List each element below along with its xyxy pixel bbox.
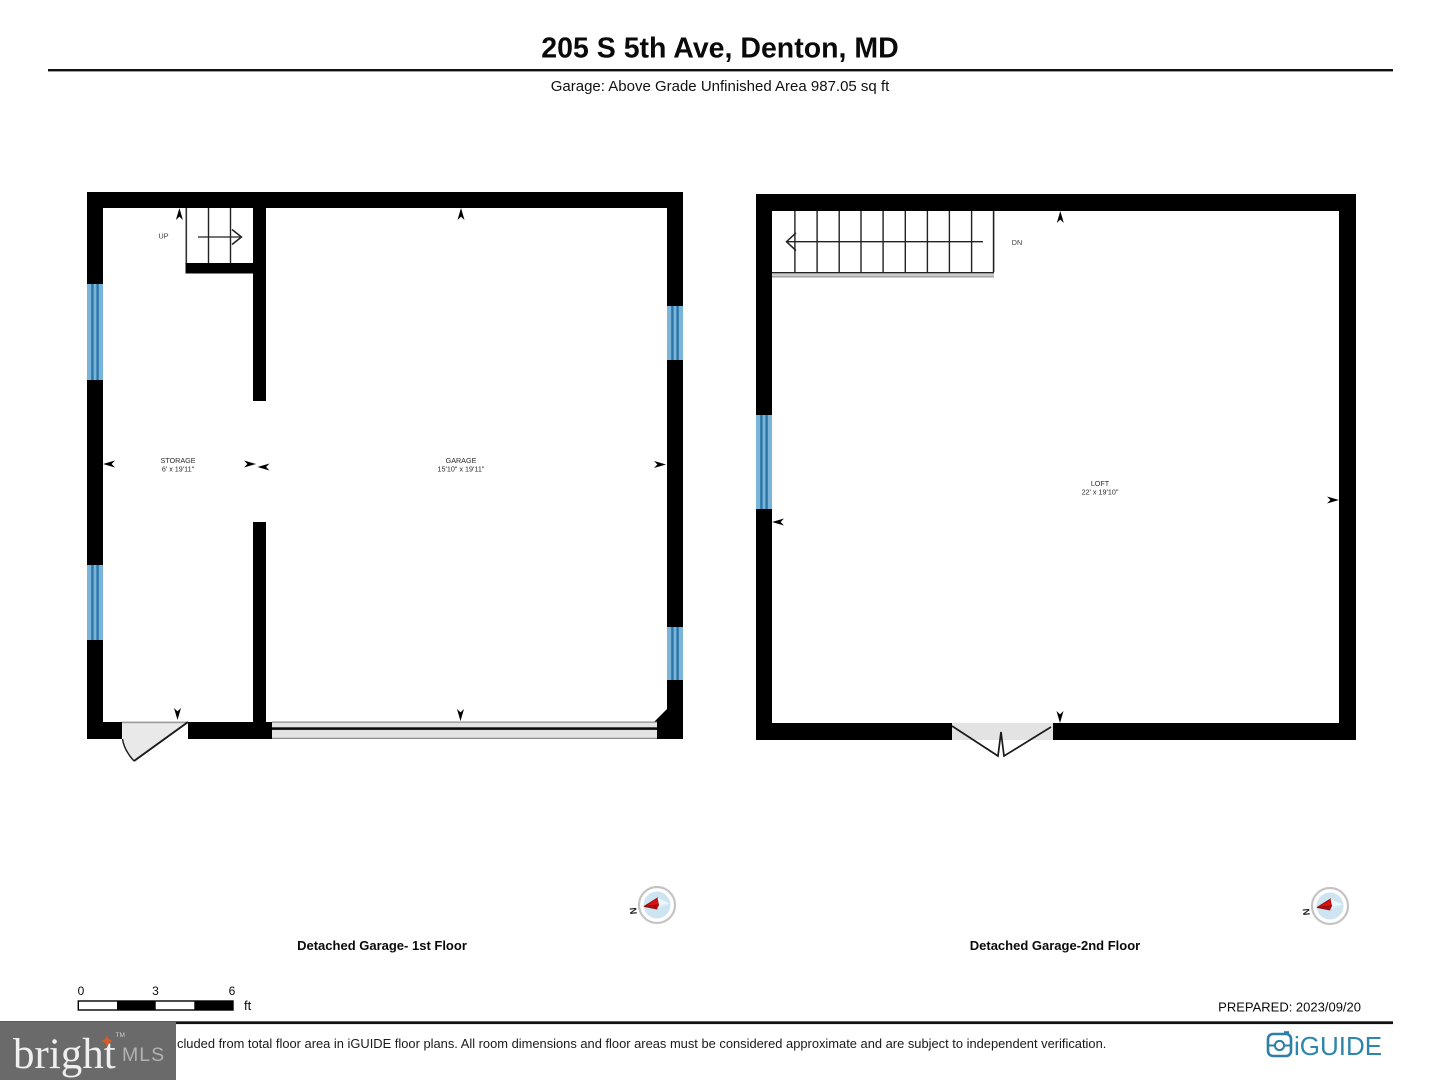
svg-text:iGUIDE: iGUIDE: [1294, 1031, 1382, 1061]
svg-text:205 S 5th Ave, Denton, MD: 205 S 5th Ave, Denton, MD: [541, 33, 898, 65]
svg-text:6' x 19'11": 6' x 19'11": [162, 465, 195, 474]
svg-text:TM: TM: [116, 1032, 125, 1039]
svg-text:15'10" x 19'11": 15'10" x 19'11": [438, 465, 485, 474]
svg-text:N: N: [628, 907, 640, 915]
svg-text:cluded from total floor area i: cluded from total floor area in iGUIDE f…: [177, 1036, 1106, 1051]
svg-text:PREPARED: 2023/09/20: PREPARED: 2023/09/20: [1218, 1000, 1361, 1015]
svg-text:MLS: MLS: [122, 1044, 165, 1066]
svg-text:DN: DN: [1012, 238, 1022, 247]
svg-text:Detached Garage- 1st Floor: Detached Garage- 1st Floor: [297, 938, 467, 953]
svg-text:0: 0: [78, 984, 85, 998]
svg-text:6: 6: [229, 984, 236, 998]
svg-text:ft: ft: [244, 998, 252, 1013]
svg-text:Detached Garage-2nd Floor: Detached Garage-2nd Floor: [970, 938, 1140, 953]
svg-text:3: 3: [152, 984, 159, 998]
svg-text:N: N: [1301, 908, 1313, 916]
svg-text:UP: UP: [159, 232, 169, 241]
svg-text:22' x 19'10": 22' x 19'10": [1082, 488, 1119, 497]
svg-text:Garage: Above Grade Unfinished: Garage: Above Grade Unfinished Area 987.…: [551, 78, 890, 95]
svg-text:bright: bright: [13, 1031, 116, 1078]
